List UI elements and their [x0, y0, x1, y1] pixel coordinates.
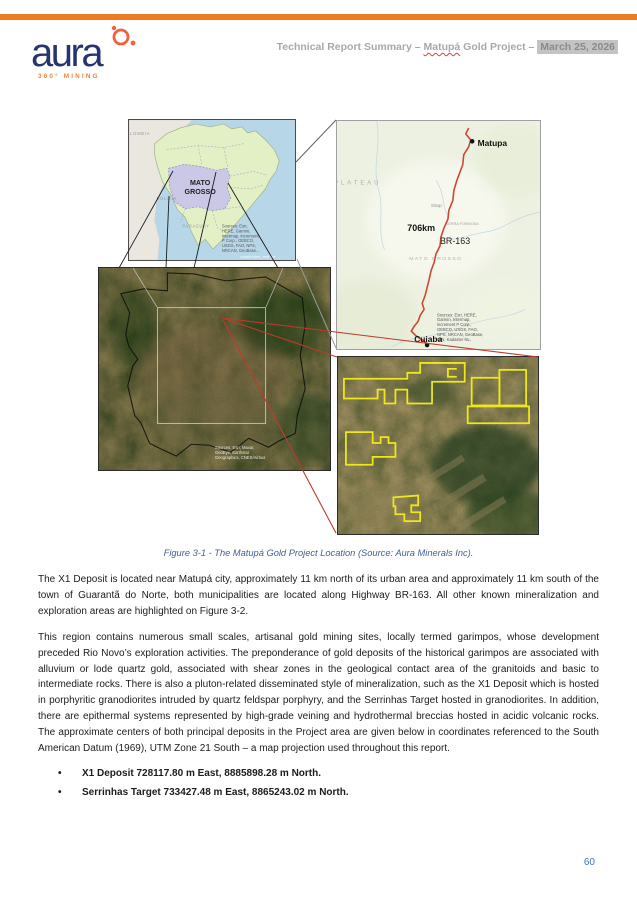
bullet-marker: •: [58, 787, 68, 798]
coordinates-bullet-list: • X1 Deposit 728117.80 m East, 8885898.2…: [38, 764, 599, 802]
header-title-middle: Gold Project –: [460, 41, 537, 53]
bullet-text-serrinhas: Serrinhas Target 733427.48 m East, 88652…: [82, 787, 349, 798]
body-paragraph-2: This region contains numerous small scal…: [38, 630, 599, 756]
svg-text:NRCAN, GeoBase...: NRCAN, GeoBase...: [222, 248, 260, 253]
label-town: Sinop: [431, 203, 442, 208]
list-item: • X1 Deposit 728117.80 m East, 8885898.2…: [38, 764, 599, 783]
body-paragraph-1: The X1 Deposit is located near Matupá ci…: [38, 572, 599, 619]
header-date-highlight: March 25, 2026: [537, 40, 618, 54]
svg-text:Geographics, CNES/Airbus: Geographics, CNES/Airbus: [215, 455, 265, 460]
distance-label: 706km: [407, 223, 435, 233]
brazil-location-map: MATO GROSSO LOMBIA BOLIVIA PARAGUAY Sour…: [128, 119, 296, 261]
aura-logo-ring-icon: [104, 19, 144, 53]
bullet-text-x1: X1 Deposit 728117.80 m East, 8885898.28 …: [82, 768, 321, 779]
matupa-dot: [470, 139, 475, 144]
logo-tagline: 360° MINING: [38, 73, 100, 80]
page-number: 60: [584, 857, 595, 868]
highway-label: BR-163: [440, 236, 470, 246]
brazil-map-attribution: contributors, and the: [240, 254, 277, 259]
state-label-line1: MATO: [190, 179, 211, 187]
aura-logo-wordmark: aura: [31, 33, 101, 73]
label-paraguay: PARAGUAY: [182, 223, 209, 228]
header-title-prefix: Technical Report Summary –: [277, 41, 424, 53]
tenement-satellite-map: [337, 356, 539, 535]
figure-caption: Figure 3-1 - The Matupá Gold Project Loc…: [0, 548, 637, 558]
header-title-project: Matupá: [424, 41, 461, 53]
report-page: aura 360° MINING Technical Report Summar…: [0, 0, 637, 900]
city-label-cuiaba: Cuiaba: [414, 334, 442, 344]
label-plateau: PLATEAU: [337, 180, 381, 186]
state-label-line2: GROSSO: [185, 188, 217, 196]
city-label-matupa: Matupa: [478, 138, 508, 148]
label-colombia: LOMBIA: [130, 131, 150, 136]
top-accent-bar: [0, 14, 637, 20]
highway-route-map: PLATEAU Sinop SERRA FORMOSA MATO GROSSO …: [336, 120, 541, 350]
list-item: • Serrinhas Target 733427.48 m East, 886…: [38, 783, 599, 802]
bullet-marker: •: [58, 768, 68, 779]
label-serra: SERRA FORMOSA: [446, 222, 479, 226]
satellite-state-map: Sources: Esri, Maxar, GeoEye, Earthstar …: [98, 267, 331, 471]
label-bolivia: BOLIVIA: [157, 196, 177, 201]
header-title: Technical Report Summary – Matupá Gold P…: [277, 41, 618, 53]
